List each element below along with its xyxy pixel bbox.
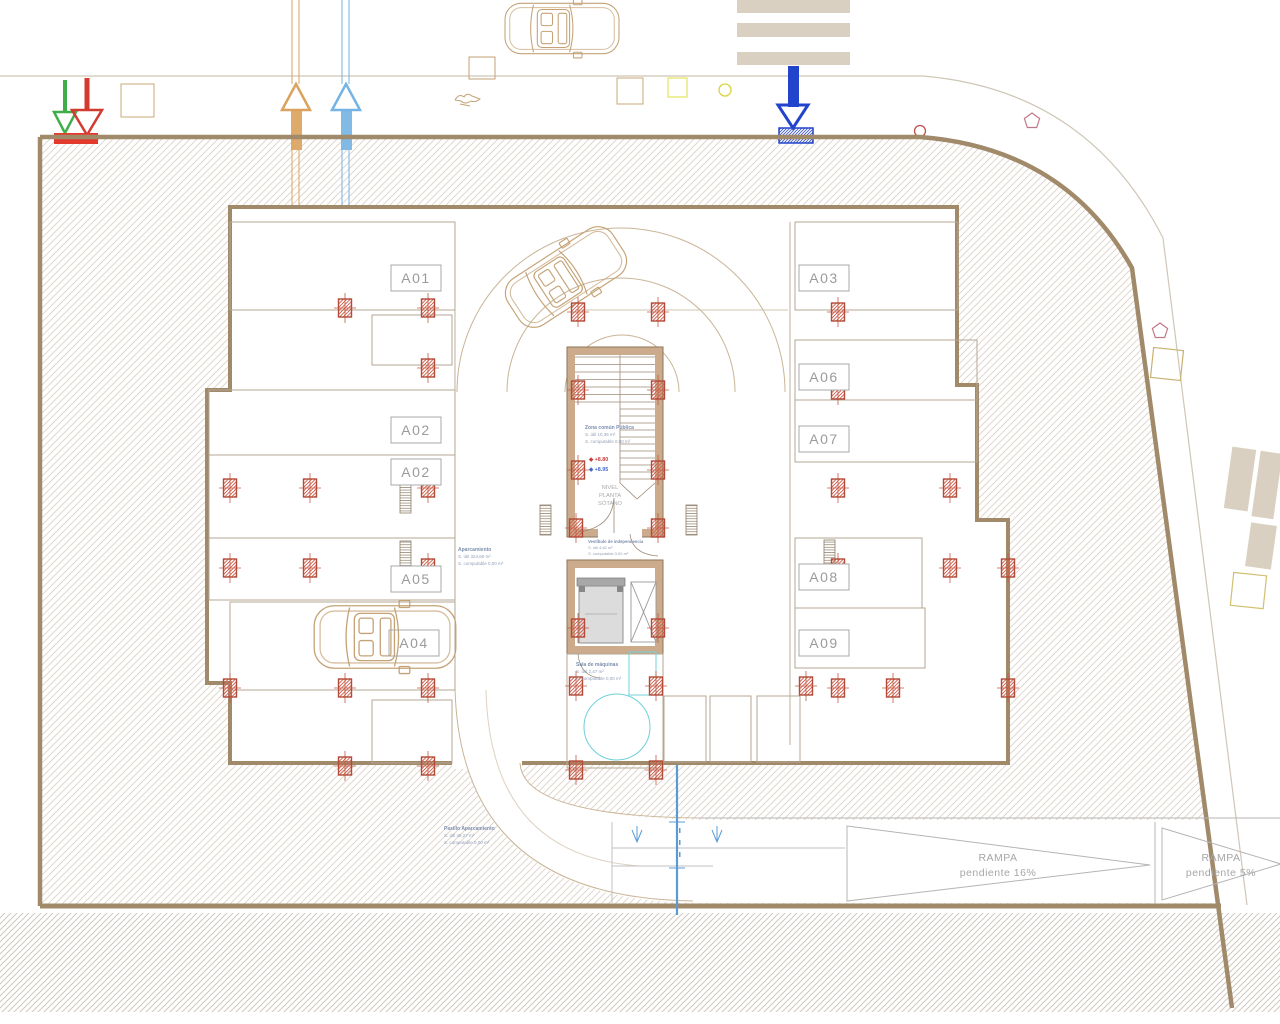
elevator-core: [567, 560, 663, 654]
parking-label-a08: A08: [799, 564, 849, 590]
svg-text:A01: A01: [401, 270, 430, 286]
svg-text:◆ +8.80: ◆ +8.80: [588, 457, 608, 463]
svg-text:S. útil 4,62 m²: S. útil 4,62 m²: [588, 545, 613, 550]
svg-text:S. útil 48,27 m²: S. útil 48,27 m²: [444, 833, 475, 838]
svg-text:S. computable 0,00 m²: S. computable 0,00 m²: [458, 561, 504, 566]
svg-text:A04: A04: [399, 635, 428, 651]
svg-text:pendiente 16%: pendiente 16%: [960, 867, 1037, 879]
svg-text:RAMPA: RAMPA: [1201, 852, 1240, 864]
plan-drawing: A01 A02 A02 A05 A04 A03 A06 A07: [0, 0, 1280, 1024]
crosswalk-stripes-right: [1224, 447, 1280, 570]
svg-text:RAMPA: RAMPA: [978, 852, 1017, 864]
parking-label-a01: A01: [391, 265, 441, 291]
svg-text:Aparcamiento: Aparcamiento: [458, 547, 491, 553]
svg-text:Vestíbulo de independencia: Vestíbulo de independencia: [588, 539, 644, 544]
hydrant-pentagon: [1024, 113, 1039, 128]
svg-text:S. computable 0,00 m²: S. computable 0,00 m²: [585, 439, 631, 444]
parking-label-a02b: A02: [391, 459, 441, 485]
parking-label-a09: A09: [799, 630, 849, 656]
svg-text:Zona común Pública: Zona común Pública: [585, 425, 634, 431]
car-icon-street: [505, 0, 619, 58]
svg-text:NIVEL: NIVEL: [602, 485, 620, 491]
crosswalk-stripes-top: [737, 0, 850, 65]
parking-label-a07: A07: [799, 426, 849, 452]
vehicle-entry-arrow-darkblue: [778, 66, 813, 143]
svg-text:A07: A07: [809, 431, 838, 447]
hydrant-pentagon-2: [1152, 323, 1167, 338]
service-square-tan: [617, 78, 643, 104]
parking-label-a02: A02: [391, 417, 441, 443]
service-square-yellow: [668, 78, 687, 97]
svg-text:◆ +8.95: ◆ +8.95: [588, 467, 608, 473]
parking-label-a05: A05: [391, 566, 441, 592]
svg-text:A09: A09: [809, 635, 838, 651]
svg-text:A02: A02: [401, 464, 430, 480]
svg-text:S. útil 324,60 m²: S. útil 324,60 m²: [458, 554, 491, 559]
svg-text:A06: A06: [809, 369, 838, 385]
utility-square: [121, 84, 154, 117]
svg-text:pendiente 5%: pendiente 5%: [1186, 867, 1256, 879]
floor-plan-basement: A01 A02 A02 A05 A04 A03 A06 A07: [0, 0, 1280, 1024]
svg-text:Pasillo Aparcamiento: Pasillo Aparcamiento: [444, 826, 495, 832]
svg-text:A08: A08: [809, 569, 838, 585]
svg-text:S. computable 0,00 m²: S. computable 0,00 m²: [576, 676, 622, 681]
parking-label-a06: A06: [799, 364, 849, 390]
bottom-ground-strip: [0, 913, 1280, 1012]
svg-text:SÓTANO: SÓTANO: [598, 500, 623, 507]
svg-text:A05: A05: [401, 571, 430, 587]
svg-text:S. útil 2,47 m²: S. útil 2,47 m²: [576, 669, 604, 674]
svg-text:A02: A02: [401, 422, 430, 438]
svg-text:Sala de máquinas: Sala de máquinas: [576, 662, 618, 668]
parking-label-a03: A03: [799, 265, 849, 291]
svg-text:S. útil 10,35 m²: S. útil 10,35 m²: [585, 432, 616, 437]
manhole-yellow: [719, 84, 731, 96]
svg-text:A03: A03: [809, 270, 838, 286]
svg-text:PLANTA: PLANTA: [599, 493, 621, 499]
pedestrian-arrow-green: [54, 80, 76, 133]
svg-text:S. computable 0,00 m²: S. computable 0,00 m²: [588, 551, 629, 556]
svg-text:S. computable 0,00 m²: S. computable 0,00 m²: [444, 840, 490, 845]
animal-symbol: [455, 94, 480, 106]
service-square-right-2: [1230, 572, 1266, 608]
